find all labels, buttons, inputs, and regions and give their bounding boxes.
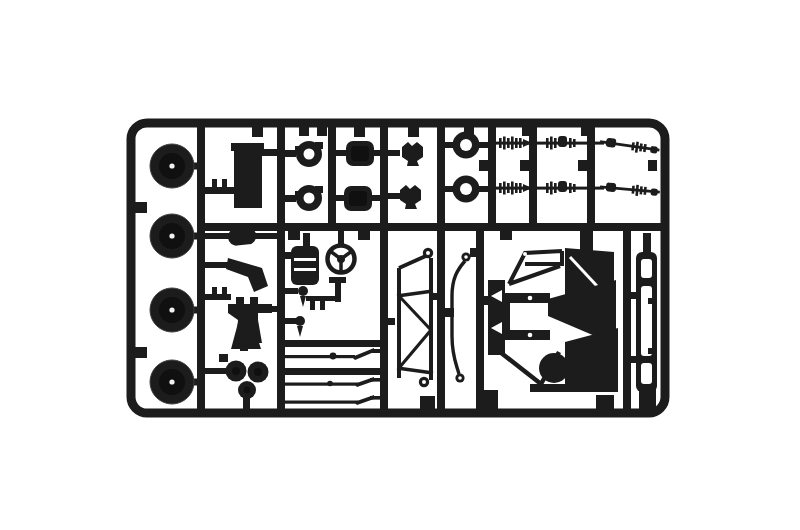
wheel-part-4 <box>150 360 202 404</box>
hub-ring-parts <box>283 141 323 211</box>
tie-rod-parts <box>285 348 384 405</box>
shift-lever-parts <box>283 286 308 337</box>
exhaust-bracket-part <box>205 258 268 300</box>
sprue-photo <box>0 0 800 530</box>
truss-frame-part <box>386 248 443 387</box>
frame-rail-part <box>629 233 657 392</box>
steering-wheel-part <box>328 229 355 273</box>
wheel-part-2 <box>150 214 202 258</box>
axle-housing-parts <box>334 141 382 211</box>
chassis-assembly-part <box>482 231 618 392</box>
fuel-tank-part <box>205 143 280 208</box>
wheel-part-1 <box>150 144 202 188</box>
drive-shaft-row-2 <box>494 181 660 198</box>
brake-line-part <box>445 248 478 383</box>
wheel-part-3 <box>150 288 202 332</box>
seat-stack-part <box>283 233 319 285</box>
clip-parts <box>386 142 423 209</box>
pulley-cluster-part <box>205 354 269 410</box>
drive-shaft-row-1 <box>494 136 660 156</box>
photo-stage <box>0 0 800 530</box>
